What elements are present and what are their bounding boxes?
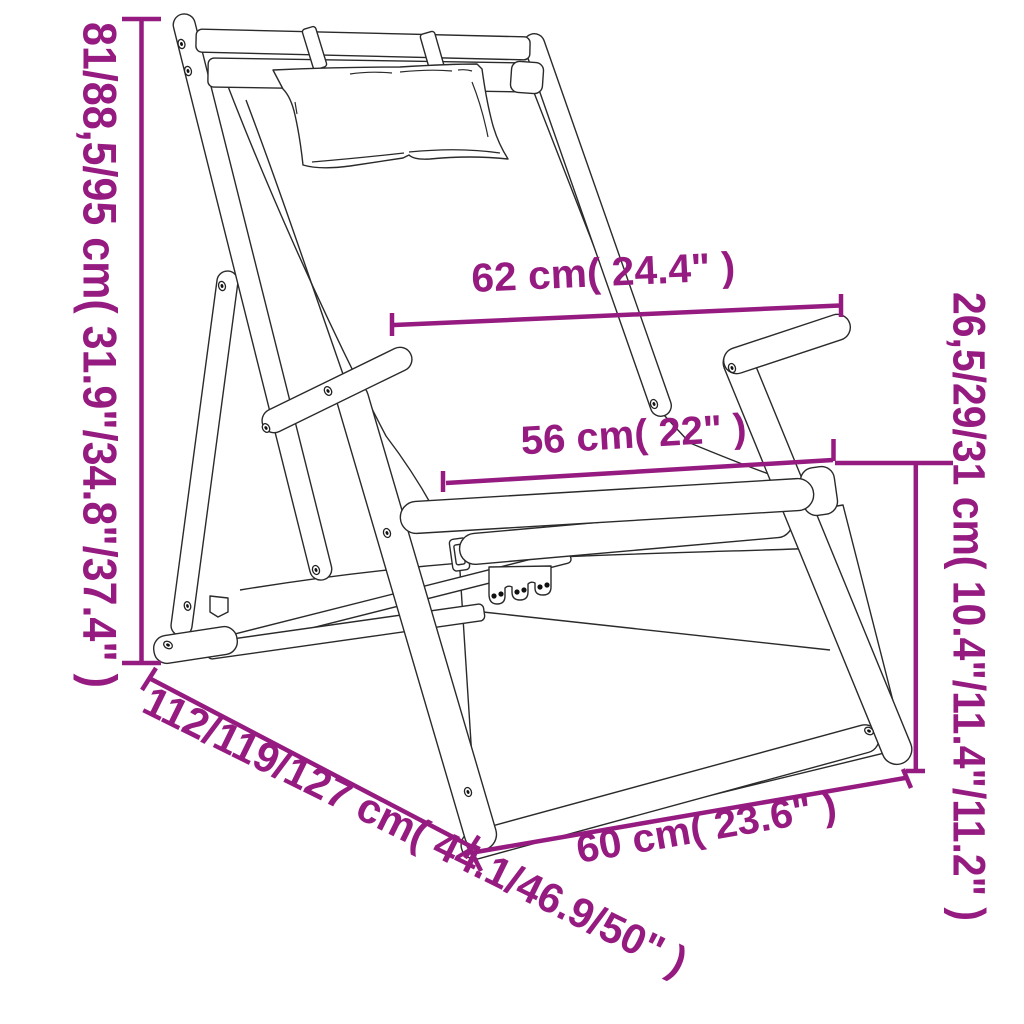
svg-text:81/88,5/95 cm( 31.9"/34.8"/37.: 81/88,5/95 cm( 31.9"/34.8"/37.4" ): [74, 22, 127, 688]
svg-text:26,5/29/31 cm( 10.4"/11.4"/11.: 26,5/29/31 cm( 10.4"/11.4"/11.2" ): [944, 292, 995, 921]
